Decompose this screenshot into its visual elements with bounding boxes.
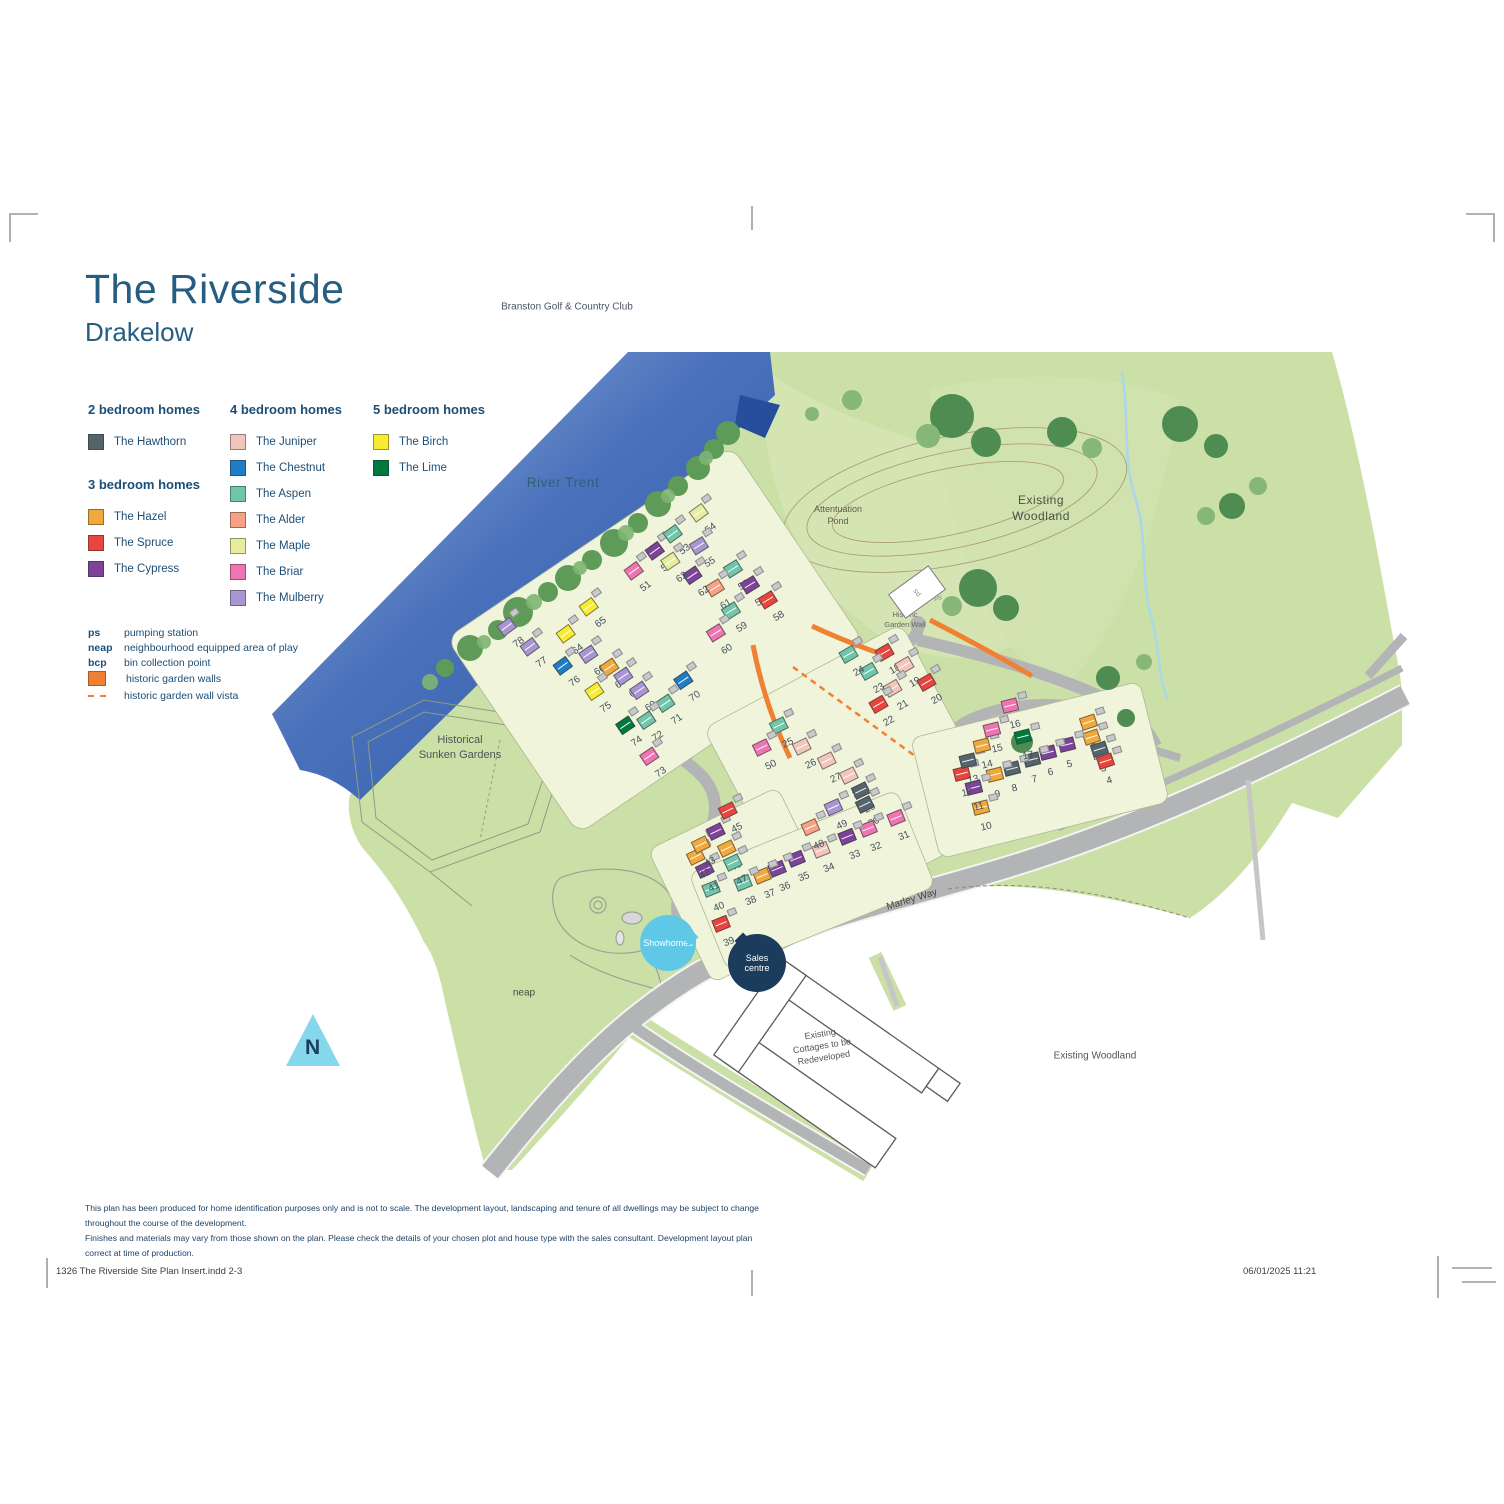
legend-item-label: The Lime — [399, 462, 447, 474]
legend-abbr-ps: pspumping station — [88, 625, 298, 640]
site-plan-basemap — [0, 0, 1504, 1504]
abbr-label: bin collection point — [124, 657, 210, 669]
abbr-key: neap — [88, 642, 124, 654]
legend-item-label: The Alder — [256, 514, 305, 526]
legend-item-chestnut: The Chestnut — [230, 455, 370, 481]
legend-column-2: 4 bedroom homesThe JuniperThe ChestnutTh… — [230, 402, 370, 633]
print-footer-left: 1326 The Riverside Site Plan Insert.indd… — [56, 1266, 242, 1277]
symbol-label: historic garden walls — [126, 673, 221, 685]
legend-item-briar: The Briar — [230, 559, 370, 585]
page-title: The Riverside — [85, 268, 344, 311]
abbr-label: pumping station — [124, 627, 198, 639]
legend-group: 4 bedroom homesThe JuniperThe ChestnutTh… — [230, 402, 370, 611]
map-label-river-trent: River Trent — [527, 474, 600, 492]
legend-item-label: The Birch — [399, 436, 448, 448]
legend-group: 5 bedroom homesThe BirchThe Lime — [373, 402, 513, 481]
legend-item-label: The Mulberry — [256, 592, 324, 604]
print-footer-right: 06/01/2025 11:21 — [1243, 1266, 1316, 1277]
disclaimer-line-1: This plan has been produced for home ide… — [85, 1201, 775, 1231]
legend-item-lime: The Lime — [373, 455, 513, 481]
legend-item-label: The Chestnut — [256, 462, 325, 474]
abbr-label: neighbourhood equipped area of play — [124, 642, 298, 654]
legend-item-spruce: The Spruce — [88, 530, 228, 556]
chestnut-color-swatch — [230, 460, 246, 476]
sales-centre-bubble: Salescentre — [728, 934, 786, 992]
site-plan-page: The Riverside Drakelow 2 bedroom homesTh… — [0, 0, 1504, 1504]
birch-color-swatch — [373, 434, 389, 450]
header: The Riverside Drakelow — [85, 268, 344, 348]
legend-item-label: The Maple — [256, 540, 310, 552]
legend-item-birch: The Birch — [373, 429, 513, 455]
mulberry-color-swatch — [230, 590, 246, 606]
alder-color-swatch — [230, 512, 246, 528]
compass-letter: N — [305, 1036, 320, 1060]
map-label-neap-area: neap — [513, 986, 535, 1000]
juniper-color-swatch — [230, 434, 246, 450]
map-label-existing-woodland-top: ExistingWoodland — [1012, 492, 1070, 524]
legend-item-label: The Juniper — [256, 436, 317, 448]
showhomes-bubble: Showhomes — [640, 915, 696, 971]
north-compass-icon: N — [286, 1014, 340, 1066]
map-label-branston-golf-club: Branston Golf & Country Club — [501, 300, 633, 314]
legend-item-cypress: The Cypress — [88, 556, 228, 582]
briar-color-swatch — [230, 564, 246, 580]
disclaimer: This plan has been produced for home ide… — [85, 1201, 775, 1261]
legend-group: 2 bedroom homesThe Hawthorn — [88, 402, 228, 455]
map-label-attenuation-pond: AttentuationPond — [814, 503, 862, 527]
lime-color-swatch — [373, 460, 389, 476]
legend-item-juniper: The Juniper — [230, 429, 370, 455]
map-label-existing-woodland-bottom: Existing Woodland — [1054, 1049, 1137, 1063]
historic-wall-vista-dash — [88, 695, 106, 697]
legend-item-aspen: The Aspen — [230, 481, 370, 507]
symbol-label: historic garden wall vista — [124, 690, 238, 702]
legend-group-heading: 4 bedroom homes — [230, 402, 370, 417]
legend-group-heading: 3 bedroom homes — [88, 477, 228, 492]
legend-symbol: historic garden wall vista — [88, 687, 298, 704]
legend-abbr-bcp: bcpbin collection point — [88, 655, 298, 670]
cypress-color-swatch — [88, 561, 104, 577]
legend-item-label: The Briar — [256, 566, 303, 578]
legend-column-3: 5 bedroom homesThe BirchThe Lime — [373, 402, 513, 503]
legend-item-label: The Hazel — [114, 511, 166, 523]
spruce-color-swatch — [88, 535, 104, 551]
maple-color-swatch — [230, 538, 246, 554]
legend-abbreviations: pspumping stationneapneighbourhood equip… — [88, 625, 298, 704]
abbr-key: ps — [88, 627, 124, 639]
legend-symbol: historic garden walls — [88, 670, 298, 687]
legend-item-hazel: The Hazel — [88, 504, 228, 530]
legend-item-label: The Hawthorn — [114, 436, 186, 448]
legend-item-hawthorn: The Hawthorn — [88, 429, 228, 455]
aspen-color-swatch — [230, 486, 246, 502]
legend-column-1: 2 bedroom homesThe Hawthorn3 bedroom hom… — [88, 402, 228, 604]
hazel-color-swatch — [88, 509, 104, 525]
historic-wall-swatch — [88, 671, 106, 686]
pumping-station-label: ps — [912, 587, 922, 597]
map-label-historical-sunken-gardens: HistoricalSunken Gardens — [419, 733, 502, 763]
legend-abbr-neap: neapneighbourhood equipped area of play — [88, 640, 298, 655]
hawthorn-color-swatch — [88, 434, 104, 450]
abbr-key: bcp — [88, 657, 124, 669]
page-subtitle: Drakelow — [85, 317, 344, 348]
legend-item-label: The Spruce — [114, 537, 173, 549]
legend-item-maple: The Maple — [230, 533, 370, 559]
legend-group-heading: 2 bedroom homes — [88, 402, 228, 417]
legend-group: 3 bedroom homesThe HazelThe SpruceThe Cy… — [88, 477, 228, 582]
legend-item-alder: The Alder — [230, 507, 370, 533]
disclaimer-line-2: Finishes and materials may vary from tho… — [85, 1231, 775, 1261]
legend-group-heading: 5 bedroom homes — [373, 402, 513, 417]
legend-item-label: The Aspen — [256, 488, 311, 500]
legend-item-mulberry: The Mulberry — [230, 585, 370, 611]
legend-item-label: The Cypress — [114, 563, 179, 575]
